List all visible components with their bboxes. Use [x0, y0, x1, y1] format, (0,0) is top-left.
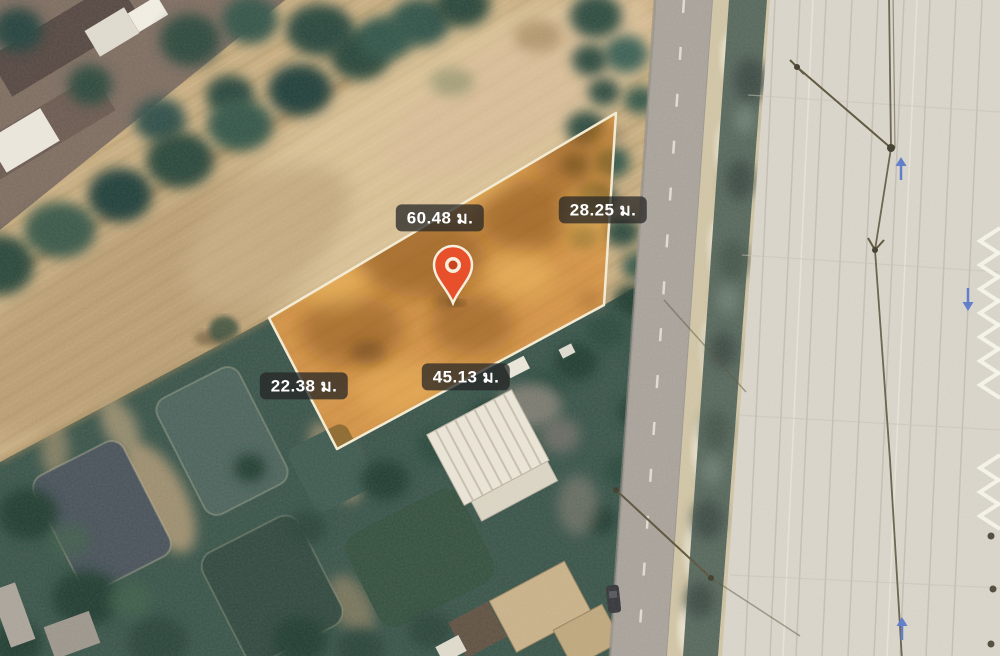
measurement-label-right: 28.25 ม.	[559, 196, 647, 223]
measurement-label-left: 22.38 ม.	[260, 372, 348, 399]
measurement-label-top: 60.48 ม.	[396, 204, 484, 231]
satellite-map-view[interactable]: 60.48 ม. 28.25 ม. 22.38 ม. 45.13 ม.	[0, 0, 1000, 656]
measurement-label-bottom: 45.13 ม.	[422, 363, 510, 390]
satellite-imagery	[0, 0, 1000, 656]
